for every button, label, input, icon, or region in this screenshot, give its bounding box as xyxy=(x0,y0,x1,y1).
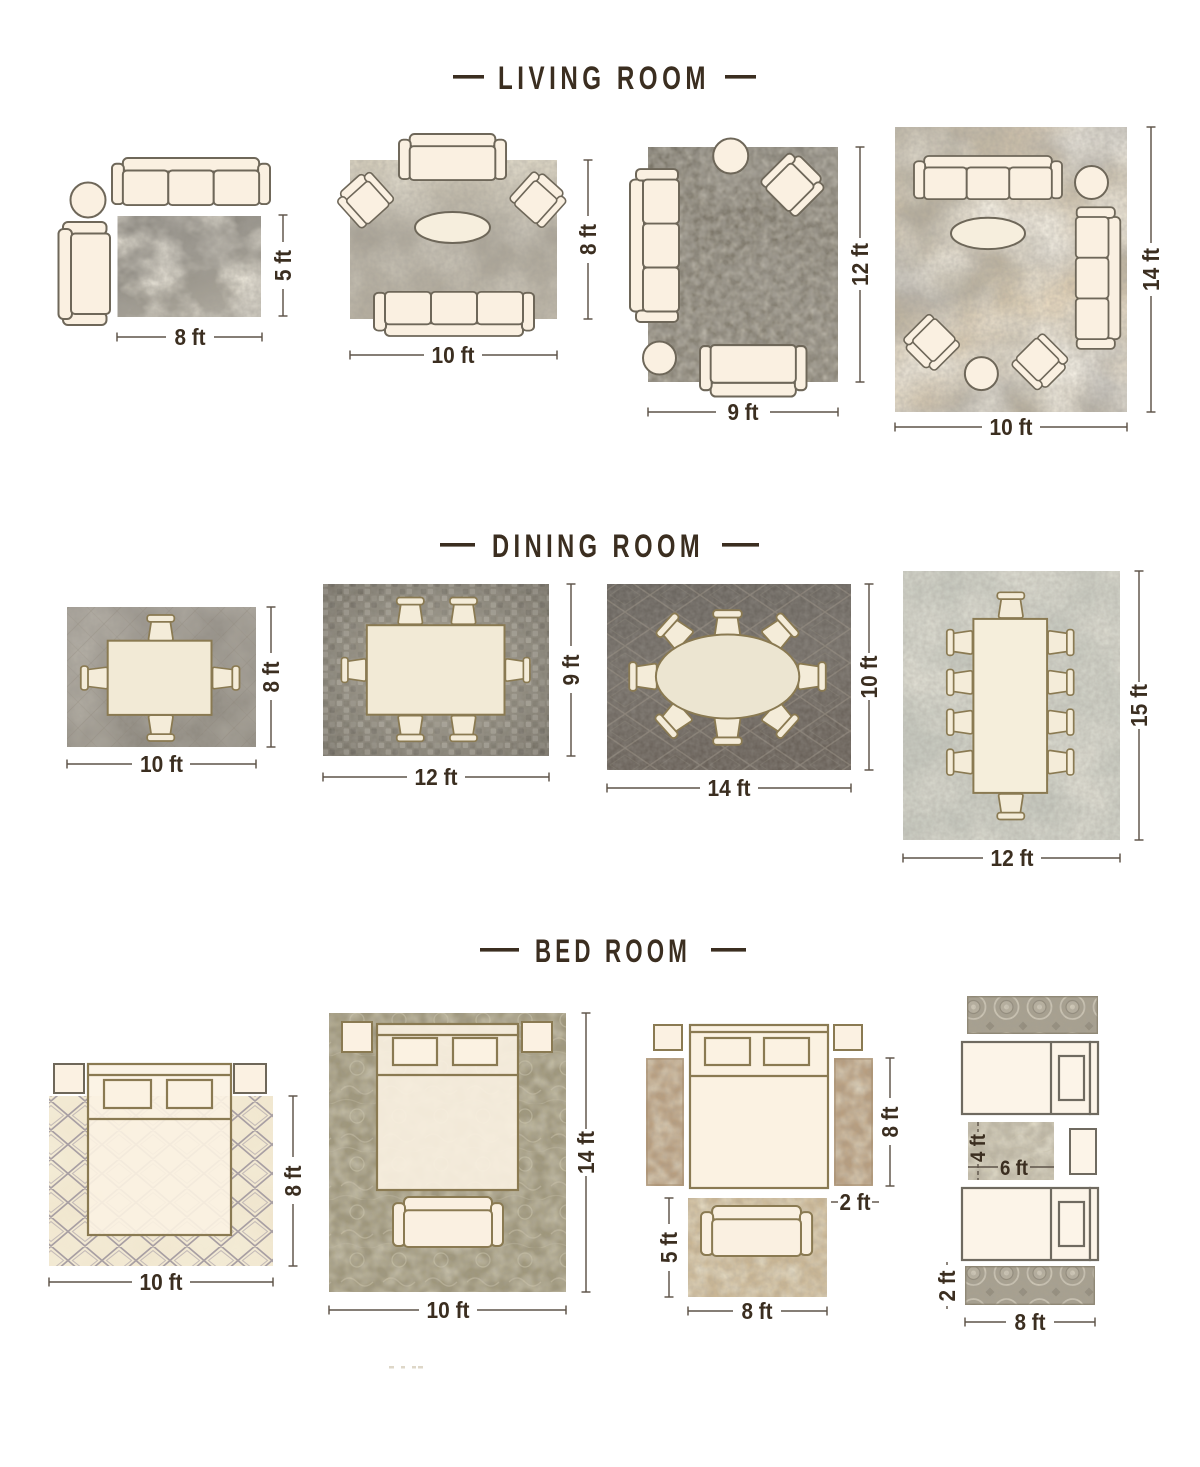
svg-text:10 ft: 10 ft xyxy=(140,751,183,777)
svg-text:4 ft: 4 ft xyxy=(967,1134,990,1162)
svg-text:9 ft: 9 ft xyxy=(728,399,759,425)
svg-text:10 ft: 10 ft xyxy=(990,414,1033,440)
svg-text:2 ft: 2 ft xyxy=(840,1189,871,1215)
svg-text:BED ROOM: BED ROOM xyxy=(535,933,691,969)
svg-text:8 ft: 8 ft xyxy=(280,1165,306,1196)
svg-text:12 ft: 12 ft xyxy=(991,845,1034,871)
svg-text:14 ft: 14 ft xyxy=(708,775,751,801)
svg-text:10 ft: 10 ft xyxy=(427,1297,470,1323)
svg-text:5 ft: 5 ft xyxy=(270,250,296,281)
svg-text:8 ft: 8 ft xyxy=(877,1106,903,1137)
svg-text:LIVING ROOM: LIVING ROOM xyxy=(498,60,710,96)
svg-text:12 ft: 12 ft xyxy=(847,243,873,286)
svg-text:8 ft: 8 ft xyxy=(258,661,284,692)
svg-text:8 ft: 8 ft xyxy=(742,1298,773,1324)
svg-text:6 ft: 6 ft xyxy=(1000,1157,1028,1180)
svg-text:8 ft: 8 ft xyxy=(175,324,206,350)
svg-text:10 ft: 10 ft xyxy=(432,342,475,368)
svg-text:12 ft: 12 ft xyxy=(415,764,458,790)
svg-text:10 ft: 10 ft xyxy=(856,655,882,698)
svg-text:8 ft: 8 ft xyxy=(575,224,601,255)
svg-text:5 ft: 5 ft xyxy=(656,1232,682,1263)
svg-text:10 ft: 10 ft xyxy=(140,1269,183,1295)
svg-text:14 ft: 14 ft xyxy=(573,1131,599,1174)
svg-text:9 ft: 9 ft xyxy=(558,654,584,685)
svg-text:2 ft: 2 ft xyxy=(934,1270,960,1301)
svg-text:8 ft: 8 ft xyxy=(1015,1309,1046,1335)
svg-text:15 ft: 15 ft xyxy=(1126,684,1152,727)
svg-text:DINING ROOM: DINING ROOM xyxy=(492,528,704,564)
svg-text:14 ft: 14 ft xyxy=(1138,248,1164,291)
